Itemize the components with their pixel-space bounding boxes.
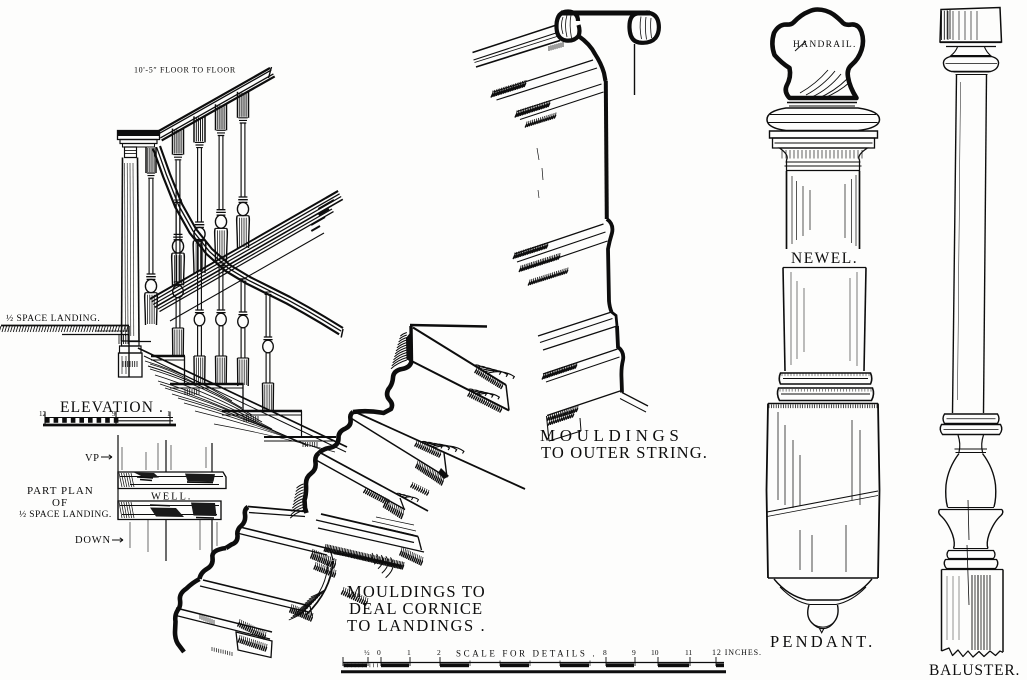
svg-text:9: 9 <box>112 410 116 418</box>
svg-text:12 INCHES.: 12 INCHES. <box>712 648 762 657</box>
svg-text:0: 0 <box>377 648 381 657</box>
svg-text:PART PLAN: PART PLAN <box>27 485 94 497</box>
svg-text:10: 10 <box>651 648 659 657</box>
svg-text:PENDANT.: PENDANT. <box>770 632 876 651</box>
svg-text:10'-5″ FLOOR TO FLOOR: 10'-5″ FLOOR TO FLOOR <box>134 66 236 75</box>
svg-text:DOWN: DOWN <box>75 535 111 546</box>
svg-text:9: 9 <box>632 648 636 657</box>
svg-text:SCALE FOR DETAILS .: SCALE FOR DETAILS . <box>456 649 597 659</box>
svg-text:½ SPACE LANDING.: ½ SPACE LANDING. <box>6 313 100 324</box>
svg-text:½: ½ <box>364 648 370 657</box>
svg-text:VP: VP <box>85 453 99 464</box>
svg-text:TO LANDINGS .: TO LANDINGS . <box>347 616 486 635</box>
svg-text:HANDRAIL.: HANDRAIL. <box>793 40 857 50</box>
svg-text:NEWEL.: NEWEL. <box>791 250 858 267</box>
svg-text:1: 1 <box>407 648 411 657</box>
svg-text:½ SPACE LANDING.: ½ SPACE LANDING. <box>19 509 112 520</box>
svg-text:8: 8 <box>603 648 607 657</box>
svg-text:12: 12 <box>39 410 47 418</box>
svg-text:1: 1 <box>167 410 171 418</box>
svg-text:OF: OF <box>52 497 68 509</box>
svg-text:TO OUTER STRING.: TO OUTER STRING. <box>541 443 708 462</box>
svg-text:BALUSTER.: BALUSTER. <box>929 662 1020 679</box>
svg-text:11: 11 <box>685 648 692 657</box>
svg-text:WELL.: WELL. <box>151 492 192 503</box>
svg-text:2: 2 <box>437 648 441 657</box>
